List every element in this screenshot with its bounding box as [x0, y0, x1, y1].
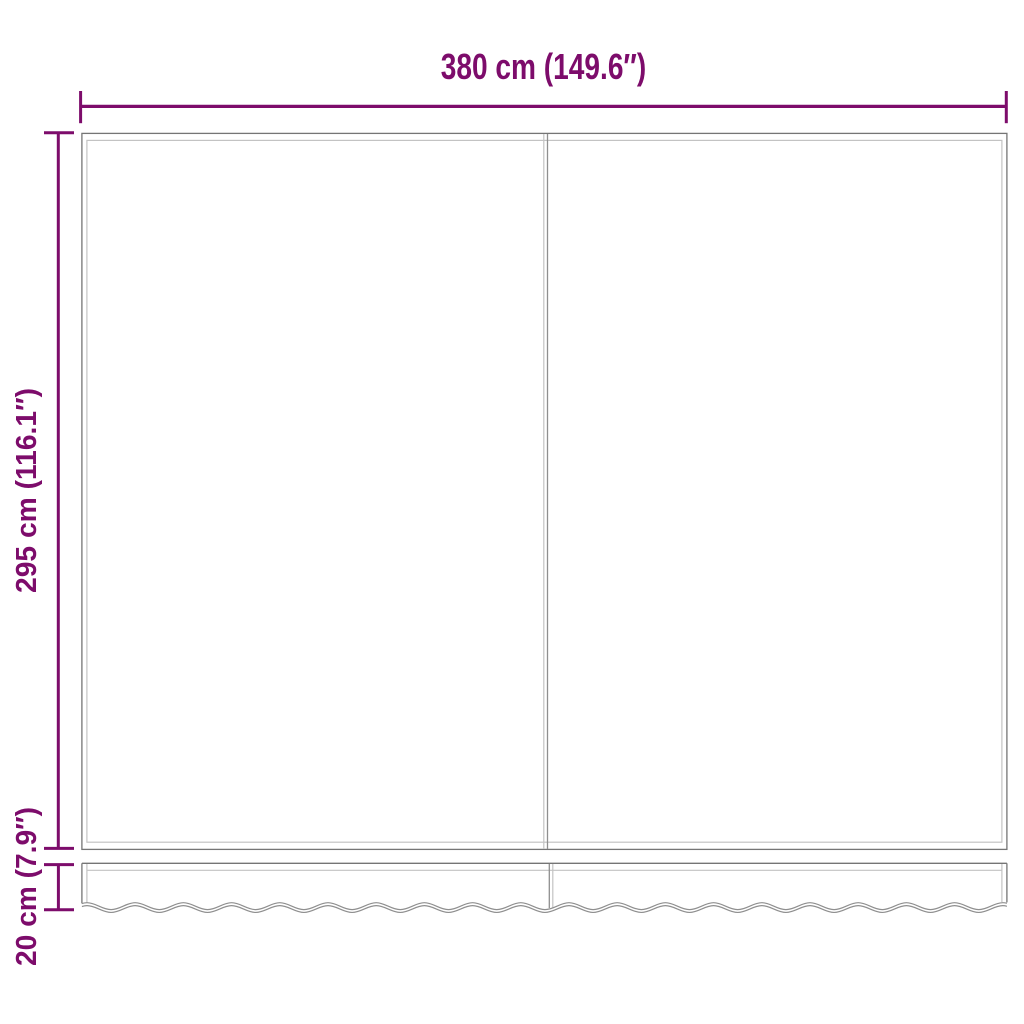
svg-text:380 cm (149.6″): 380 cm (149.6″): [441, 46, 647, 87]
svg-text:295 cm (116.1″): 295 cm (116.1″): [11, 388, 43, 593]
svg-text:20 cm (7.9″): 20 cm (7.9″): [11, 807, 43, 966]
